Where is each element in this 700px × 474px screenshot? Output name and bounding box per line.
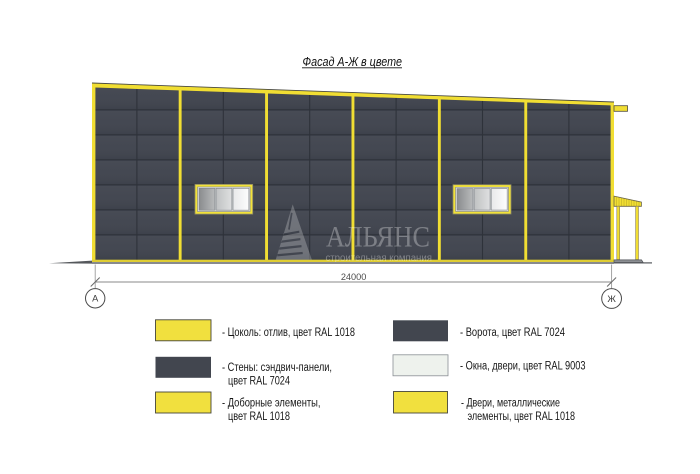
svg-text:А: А [92,294,99,304]
svg-text:- Ворота, цвет RAL 7024: - Ворота, цвет RAL 7024 [460,327,565,339]
svg-text:цвет RAL 1018: цвет RAL 1018 [228,411,290,423]
svg-text:цвет RAL 7024: цвет RAL 7024 [228,376,290,388]
svg-text:- Окна, двери, цвет RAL 9003: - Окна, двери, цвет RAL 9003 [460,361,586,373]
svg-text:Ж: Ж [607,294,616,304]
svg-text:Фасад А-Ж в цвете: Фасад А-Ж в цвете [303,55,403,69]
svg-text:АЛЬЯНС: АЛЬЯНС [326,220,430,253]
svg-text:элементы, цвет RAL 1018: элементы, цвет RAL 1018 [468,411,576,423]
svg-text:- Двери, металлические: - Двери, металлические [461,398,560,410]
svg-text:- Стены: сэндвич-панели,: - Стены: сэндвич-панели, [222,362,332,374]
svg-text:24000: 24000 [341,272,367,282]
svg-text:- Доборные элементы,: - Доборные элементы, [222,398,321,410]
svg-text:- Цоколь: отлив, цвет RAL 1018: - Цоколь: отлив, цвет RAL 1018 [222,327,355,339]
